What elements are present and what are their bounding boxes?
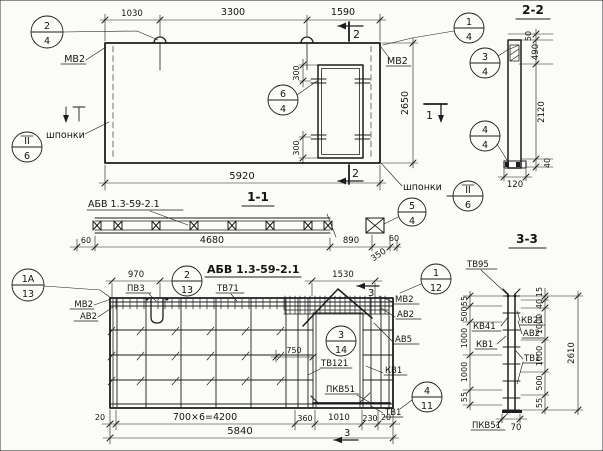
- label-mv2-plan-left: МВ2: [70, 299, 111, 310]
- cut-label-3-bottom: 3: [344, 428, 350, 439]
- callout-bottom: 4: [466, 32, 472, 43]
- cut-label-1: 1: [426, 109, 433, 122]
- dim-2650: 2650: [400, 91, 411, 115]
- label-tv95: ТВ95: [466, 260, 508, 295]
- callout-top: 5: [409, 201, 415, 212]
- plan-bottom-dims: 20 700×6=4200 360 1010 230 20 5840: [95, 410, 400, 444]
- callout-sheet-left: II 6: [12, 132, 42, 162]
- dim-3300: 3300: [221, 7, 245, 18]
- kv21-text: КВ21: [521, 316, 544, 326]
- callout-bottom: 11: [421, 401, 433, 412]
- callout-bottom: 4: [280, 104, 286, 115]
- dim-230: 230: [362, 414, 377, 423]
- panel-outline: [105, 43, 380, 163]
- section-2-2-view: 2-2 50 490 2120 40: [470, 3, 553, 190]
- pv3-text: ПВ3: [127, 284, 145, 294]
- mv2-right-text: МВ2: [387, 56, 408, 67]
- mv2-plan-left-text: МВ2: [74, 300, 93, 310]
- dim-1590: 1590: [331, 7, 355, 18]
- opening-offset-dims: 300 300: [292, 59, 318, 164]
- tv1-section-text: ТВ1: [523, 354, 540, 364]
- panel-elevation-view: 1030 3300 1590 2 2 1: [12, 7, 484, 211]
- dim-left-500: 500: [460, 306, 469, 321]
- rebar-column: [502, 289, 522, 413]
- top-chord-ticks: [116, 299, 284, 309]
- dim-360: 360: [297, 414, 312, 423]
- plan-title: АБВ 1.3-59-2.1: [207, 263, 300, 276]
- dim-2610: 2610: [567, 342, 577, 364]
- section-3-3-right-dims: 15 40 1000 1000 500 55 2610: [521, 287, 583, 415]
- callout-top: 1: [466, 17, 472, 28]
- dim-300-bottom: 300: [292, 140, 301, 155]
- section-2-2-title: 2-2: [522, 3, 544, 17]
- callout-bottom: 6: [24, 151, 30, 162]
- section-cut-2-bottom: 2: [338, 165, 363, 185]
- callout-pos-1-12: 1 12: [400, 264, 451, 294]
- callout-bottom: 4: [409, 216, 415, 227]
- slab-profile: [93, 214, 384, 237]
- callout-top: 1: [433, 268, 439, 279]
- callout-pos-5-4: 5 4: [384, 198, 426, 227]
- label-tv121: ТВ121: [308, 359, 352, 375]
- callout-bottom: 14: [335, 345, 347, 356]
- shear-keys-right: шпонки II 6: [380, 162, 483, 211]
- callout-bottom: 4: [44, 36, 50, 47]
- pkv51-section-text: ПКВ51: [472, 421, 501, 431]
- dim-left-1000a: 1000: [460, 328, 469, 348]
- callout-pos-3-4: 3 4: [470, 48, 509, 78]
- label-mv2-left: МВ2: [61, 47, 106, 65]
- panel-mark-text: АБВ 1.3-59-2.1: [88, 199, 160, 210]
- callout-top: II: [24, 136, 30, 147]
- reinforcement-plan-view: АБВ 1.3-59-2.1 2 13 970 ПВ3 ТВ71: [12, 263, 451, 444]
- callout-bottom: 12: [430, 283, 442, 294]
- dim-890: 890: [343, 236, 359, 246]
- dim-2120: 2120: [537, 101, 547, 123]
- mv2-plan-right-text: МВ2: [395, 295, 414, 305]
- dim-5840: 5840: [227, 426, 252, 437]
- rib-x-marks: [93, 221, 332, 230]
- callout-pos-4-11: 4 11: [400, 382, 442, 412]
- dim-50: 50: [524, 31, 533, 41]
- callout-bottom: 13: [181, 285, 193, 296]
- label-kv21: КВ21: [517, 311, 545, 326]
- dim-right-15: 15: [535, 287, 544, 297]
- dim-1530: 1530: [332, 270, 354, 280]
- callout-bottom: 13: [22, 289, 34, 300]
- dim-120: 120: [507, 180, 523, 190]
- dim-1010: 1010: [328, 413, 350, 423]
- label-mv2-right: МВ2: [381, 47, 411, 67]
- keys-right-text: шпонки: [403, 182, 442, 193]
- dim-4680: 4680: [200, 235, 224, 246]
- dim-left-55a: 55: [460, 296, 469, 306]
- callout-top: 3: [338, 330, 344, 341]
- kv41-text: КВ41: [473, 322, 496, 332]
- callout-top: 3: [482, 52, 488, 63]
- lifting-loop-left: [154, 37, 166, 70]
- callout-pos-6-4: 6 4: [268, 81, 317, 115]
- av2-plan-right-text: АВ2: [397, 310, 414, 320]
- section-3-3-left-dims: 55 500 1000 1000 55: [460, 291, 502, 410]
- av2-plan-left-text: АВ2: [80, 312, 97, 322]
- label-kv41: КВ41: [472, 317, 508, 332]
- callout-bottom: 4: [482, 140, 488, 151]
- callout-pos-3-14: 3 14: [326, 326, 356, 356]
- dim-970: 970: [128, 270, 144, 280]
- section-1-1-view: 1-1 АБВ 1.3-59-2.1: [70, 190, 426, 264]
- section-cut-3-bottom: 3: [334, 428, 358, 443]
- label-kv1-section: КВ1: [475, 336, 506, 350]
- kv1-section-text: КВ1: [476, 340, 493, 350]
- section-cut-1: 1: [424, 104, 447, 123]
- tv121-text: ТВ121: [320, 359, 348, 369]
- callout-pos-1-4: 1 4: [383, 13, 484, 45]
- callout-pos-4-4: 4 4: [470, 121, 507, 160]
- cut-label-2-top: 2: [353, 28, 360, 41]
- callout-bottom: 4: [482, 67, 488, 78]
- dim-750: 750: [286, 346, 301, 355]
- tv71-text: ТВ71: [216, 284, 239, 294]
- embed-top: [510, 45, 519, 61]
- vertical-bars: [117, 298, 286, 408]
- dim-490: 490: [531, 44, 541, 60]
- av5-text: АВ5: [395, 335, 412, 345]
- dim-right-55: 55: [535, 398, 544, 408]
- section-cut-2-top: 2: [338, 22, 363, 41]
- paper-background: [0, 0, 603, 451]
- callout-top: 6: [280, 89, 286, 100]
- section-3-3-view: 3-3 ТВ95: [460, 232, 583, 433]
- callout-sheet-right: II 6: [447, 181, 483, 211]
- elevation-width-dim: 5920: [99, 165, 386, 190]
- callout-bottom: 6: [465, 200, 471, 211]
- callout-top: II: [465, 185, 471, 196]
- dim-right-40: 40: [535, 299, 544, 309]
- label-pkv51-section: ПКВ51: [471, 413, 508, 431]
- blueprint-canvas: 1030 3300 1590 2 2 1: [0, 0, 603, 451]
- tv1-plan-text: ТВ1: [384, 408, 401, 418]
- blueprint-sheet: 1030 3300 1590 2 2 1: [0, 0, 603, 451]
- dim-40: 40: [543, 158, 552, 168]
- section-1-1-dims: 60 4680 890 350 60: [70, 234, 401, 264]
- callout-top: 4: [424, 386, 430, 397]
- hinge-marks: [311, 79, 370, 139]
- dim-4200: 700×6=4200: [173, 412, 237, 423]
- pkv51-text: ПКВ51: [326, 385, 355, 395]
- weld-marks: [108, 327, 284, 385]
- dim-right-500: 500: [535, 375, 544, 390]
- callout-top: 4: [482, 125, 488, 136]
- door-opening: [311, 65, 370, 158]
- dim-60-left: 60: [81, 236, 91, 245]
- callout-top: 1А: [22, 274, 35, 285]
- cut-label-2-bottom: 2: [352, 167, 359, 180]
- lintel-mesh-ticks: [285, 296, 385, 314]
- mv2-left-text: МВ2: [64, 54, 85, 65]
- callout-top: 2: [184, 270, 190, 281]
- dim-left-55b: 55: [460, 392, 469, 402]
- keys-left-text: шпонки: [46, 130, 85, 141]
- dim-1030: 1030: [121, 9, 143, 19]
- dim-60-right: 60: [389, 234, 399, 243]
- kv1-text: КВ1: [385, 366, 402, 376]
- dim-20-left: 20: [95, 413, 105, 422]
- dim-70: 70: [511, 423, 522, 433]
- embed-bottom: [504, 161, 526, 168]
- dim-5920: 5920: [229, 171, 254, 182]
- callout-pos-1a-13: 1А 13: [12, 269, 111, 301]
- shear-keys-left: шпонки II 6: [12, 107, 109, 162]
- section-1-1-title: 1-1: [247, 190, 269, 204]
- av2-section-text: АВ2: [523, 329, 540, 339]
- section-3-3-title: 3-3: [516, 232, 538, 246]
- tv95-text: ТВ95: [466, 260, 489, 270]
- dim-300-top: 300: [292, 65, 301, 80]
- callout-top: 2: [44, 21, 50, 32]
- end-block: [366, 218, 384, 233]
- label-kv1: КВ1: [366, 366, 407, 376]
- dim-left-1000b: 1000: [460, 362, 469, 382]
- shear-keys-icon: [63, 107, 85, 123]
